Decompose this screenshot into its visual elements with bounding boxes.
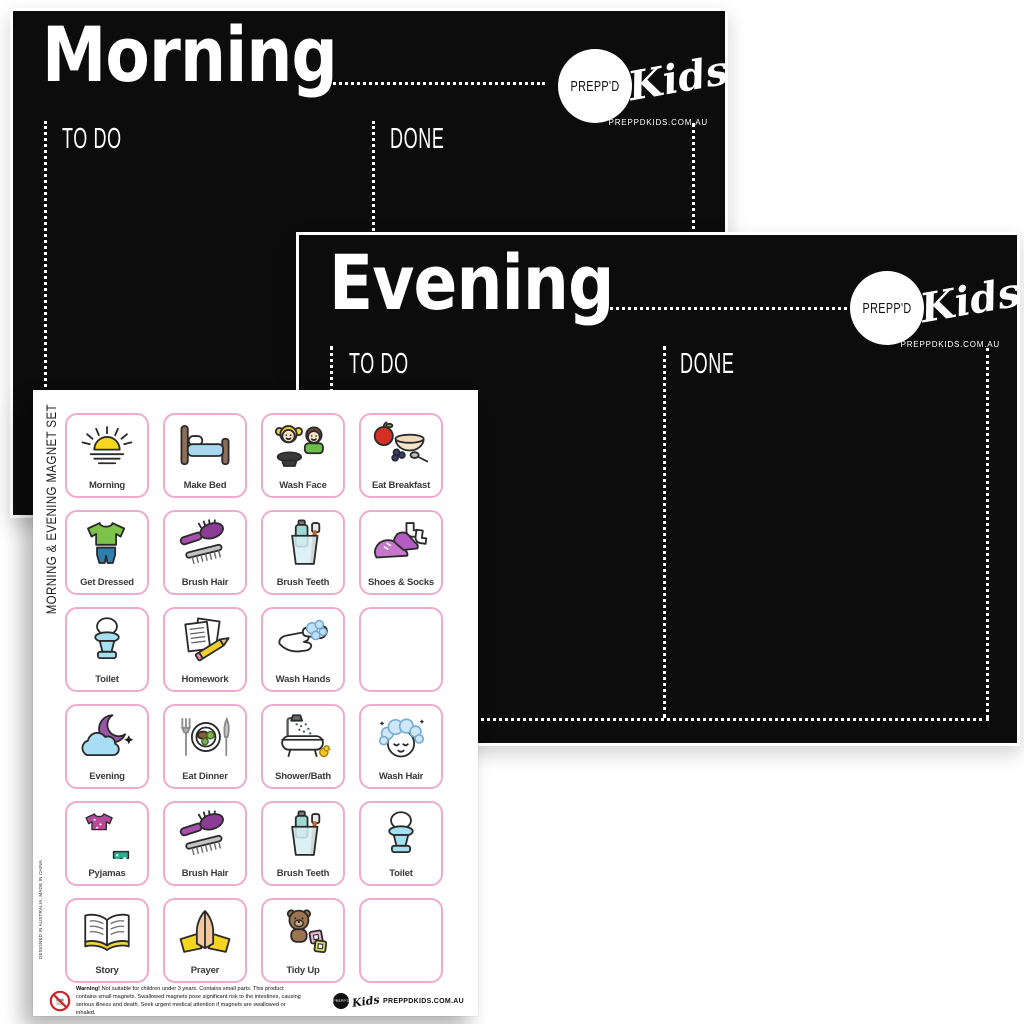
magnet-cell: Brush Hair <box>163 510 247 595</box>
magnet-cell: Wash Face <box>261 413 345 498</box>
magnet-cell: Shoes & Socks <box>359 510 443 595</box>
toilet-icon <box>78 612 136 668</box>
sheet-side-title: MORNING & EVENING MAGNET SET <box>43 426 59 615</box>
magnet-cell: Homework <box>163 607 247 692</box>
magnet-cell: Brush Hair <box>163 801 247 886</box>
magnet-cell-label: Homework <box>167 674 243 685</box>
dinner-icon <box>176 709 234 765</box>
magnet-cell-label: Brush Hair <box>167 868 243 879</box>
magnet-cell: Get Dressed <box>65 510 149 595</box>
product-image: Morning PREPP'D Kids PREPPDKIDS.COM.AU T… <box>0 0 1024 1024</box>
preppd-kids-logo: PREPP'D <box>850 271 924 345</box>
todo-label: TO DO <box>349 348 409 381</box>
pyjamas-icon <box>78 806 136 862</box>
magnet-cell: Wash Hands <box>261 607 345 692</box>
magnet-cell-label: Brush Hair <box>167 577 243 588</box>
dotted-line <box>986 348 989 718</box>
warning-row: Warning! Not suitable for children under… <box>49 985 464 1017</box>
magnet-cell-label: Tidy Up <box>265 965 341 976</box>
homework-icon <box>176 612 234 668</box>
magnet-cell: Eat Breakfast <box>359 413 443 498</box>
wash-hair-icon <box>372 709 430 765</box>
magnet-cell-label: Toilet <box>363 868 439 879</box>
sheet-side-note: DESIGNED IN AUSTRALIA. MADE IN CHINA <box>38 891 44 959</box>
magnet-cell-blank <box>359 607 443 692</box>
magnet-sheet: MORNING & EVENING MAGNET SET DESIGNED IN… <box>33 390 478 1016</box>
magnet-cell: Prayer <box>163 898 247 983</box>
warning-text: Warning! Not suitable for children under… <box>76 985 304 1017</box>
toothbrush-icon <box>274 806 332 862</box>
warning-bold: Warning! <box>76 986 100 992</box>
magnet-cell-label: Morning <box>69 480 145 491</box>
magnet-cell-label: Make Bed <box>167 480 243 491</box>
sunrise-icon <box>78 418 136 474</box>
magnet-cell-label: Toilet <box>69 674 145 685</box>
shoes-socks-icon <box>372 515 430 571</box>
warning-body: Not suitable for children under 3 years.… <box>76 986 301 1016</box>
footer-logo: PREPP'D Kids PREPPDKIDS.COM.AU <box>333 993 464 1009</box>
magnet-cell-label: Eat Breakfast <box>363 480 439 491</box>
todo-label: TO DO <box>62 123 122 156</box>
magnet-cell: Shower/Bath <box>261 704 345 789</box>
footer-logo-circle: PREPP'D <box>333 993 349 1009</box>
magnet-cell: Pyjamas <box>65 801 149 886</box>
tidy-up-icon <box>274 903 332 959</box>
footer-website-text: PREPPDKIDS.COM.AU <box>383 998 464 1005</box>
magnet-cell-label: Shoes & Socks <box>363 577 439 588</box>
magnet-cell-label: Get Dressed <box>69 577 145 588</box>
clothes-icon <box>78 515 136 571</box>
toilet-icon <box>372 806 430 862</box>
magnet-cell-label: Brush Teeth <box>265 868 341 879</box>
prayer-icon <box>176 903 234 959</box>
morning-title: Morning <box>42 17 337 93</box>
magnet-cell-label: Eat Dinner <box>167 771 243 782</box>
magnet-cell-label: Wash Face <box>265 480 341 491</box>
website-text: PREPPDKIDS.COM.AU <box>850 340 1000 349</box>
wash-face-icon <box>274 418 332 474</box>
dotted-line <box>663 346 666 718</box>
bath-icon <box>274 709 332 765</box>
logo-script-text: Kids <box>917 269 1024 333</box>
footer-logo-script: Kids <box>352 993 381 1010</box>
magnet-cell: Morning <box>65 413 149 498</box>
breakfast-icon <box>372 418 430 474</box>
magnet-cell-label: Prayer <box>167 965 243 976</box>
logo-circle-text: PREPP'D <box>862 300 911 317</box>
bed-icon <box>176 418 234 474</box>
magnet-cell-label: Story <box>69 965 145 976</box>
magnet-cell-label: Pyjamas <box>69 868 145 879</box>
magnet-cell: Tidy Up <box>261 898 345 983</box>
magnet-cell-label: Shower/Bath <box>265 771 341 782</box>
magnet-cell: Eat Dinner <box>163 704 247 789</box>
wash-hands-icon <box>274 612 332 668</box>
magnet-cell: Brush Teeth <box>261 801 345 886</box>
magnet-cell-blank <box>359 898 443 983</box>
evening-title: Evening <box>329 245 613 321</box>
magnet-cell: Make Bed <box>163 413 247 498</box>
no-small-children-warning-icon <box>49 990 71 1012</box>
hairbrush-icon <box>176 515 234 571</box>
magnet-cell-label: Evening <box>69 771 145 782</box>
done-label: DONE <box>680 348 734 381</box>
magnet-cell: Evening <box>65 704 149 789</box>
magnet-cell-label: Wash Hands <box>265 674 341 685</box>
magnet-cell: Toilet <box>65 607 149 692</box>
logo-circle-text: PREPP'D <box>570 78 619 95</box>
preppd-kids-logo: PREPP'D <box>558 49 632 123</box>
moon-cloud-icon <box>78 709 136 765</box>
done-label: DONE <box>390 123 444 156</box>
book-icon <box>78 903 136 959</box>
logo-script-text: Kids <box>625 47 732 111</box>
magnet-grid: Morning Make Bed Wash Face Eat Breakfast… <box>65 413 443 983</box>
toothbrush-icon <box>274 515 332 571</box>
magnet-cell-label: Wash Hair <box>363 771 439 782</box>
magnet-cell: Wash Hair <box>359 704 443 789</box>
magnet-cell: Toilet <box>359 801 443 886</box>
magnet-cell-label: Brush Teeth <box>265 577 341 588</box>
magnet-cell: Story <box>65 898 149 983</box>
dotted-line <box>322 82 545 85</box>
magnet-cell: Brush Teeth <box>261 510 345 595</box>
hairbrush-icon <box>176 806 234 862</box>
dotted-line <box>597 307 847 310</box>
website-text: PREPPDKIDS.COM.AU <box>558 118 708 127</box>
